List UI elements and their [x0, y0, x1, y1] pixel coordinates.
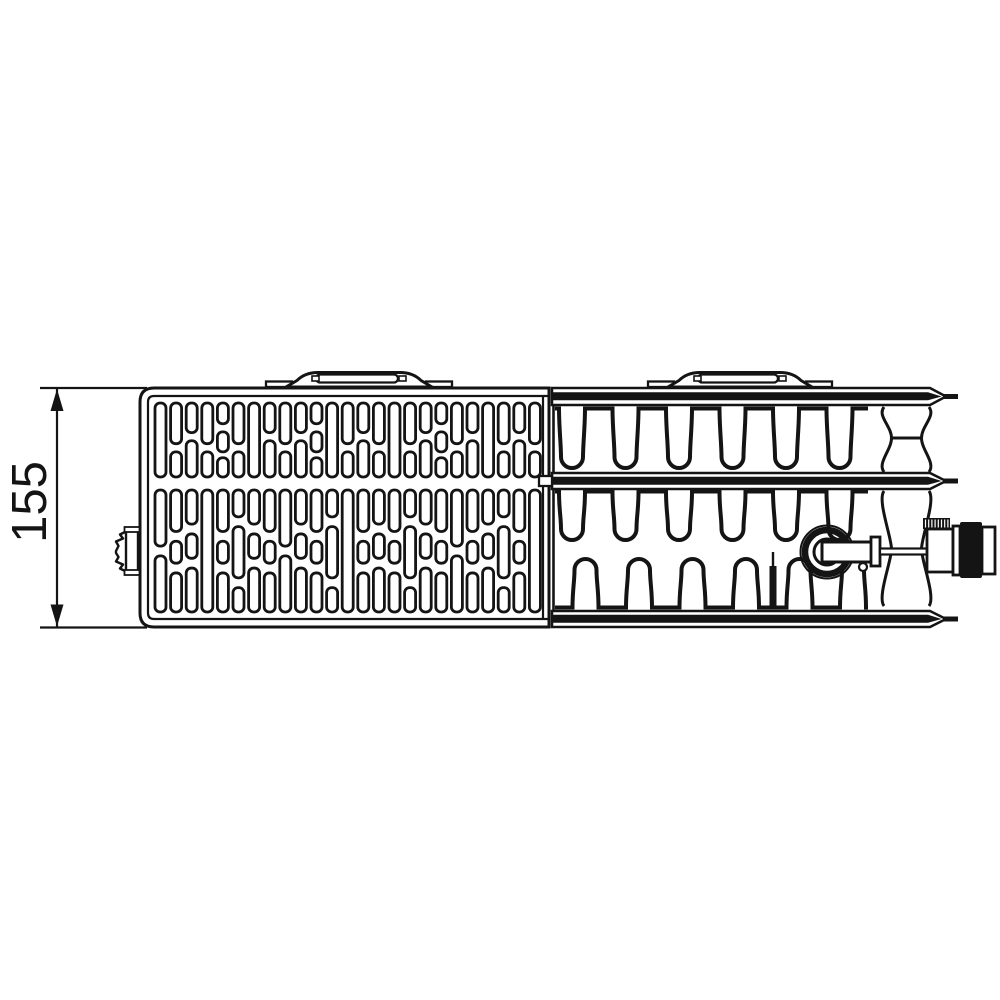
radiator-top-view-diagram: 155	[0, 0, 1000, 1000]
drawing-canvas: 155	[0, 0, 1000, 1000]
dimension-label: 155	[3, 461, 57, 543]
dimension-annotation: 155	[3, 388, 147, 628]
grille-panel	[140, 388, 549, 627]
convector-section	[539, 388, 958, 627]
mounting-brackets	[266, 373, 832, 388]
air-vent-plug	[116, 527, 140, 575]
